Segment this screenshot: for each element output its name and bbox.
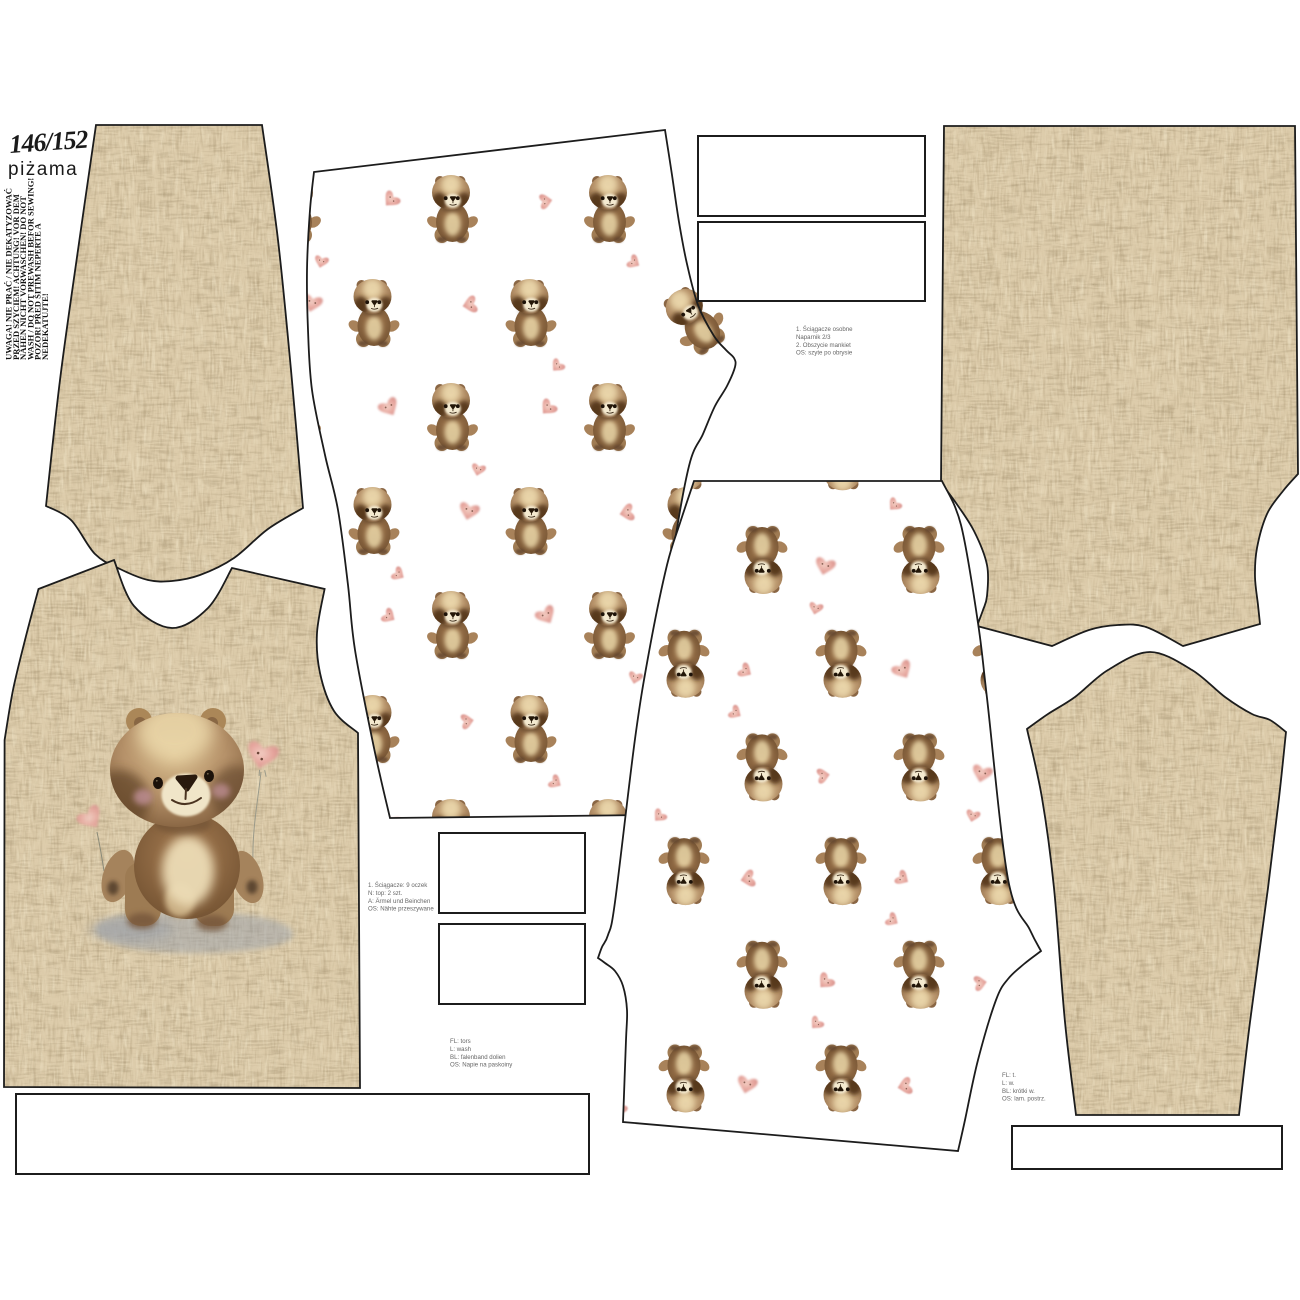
svg-text:OS: szyte po obrysie: OS: szyte po obrysie — [796, 350, 853, 357]
svg-text:NEDEKATUJTE!: NEDEKATUJTE! — [40, 293, 50, 360]
svg-text:2. Obszycie mankiet: 2. Obszycie mankiet — [796, 342, 851, 349]
svg-text:OS: Nähte przeszywane: OS: Nähte przeszywane — [368, 906, 434, 913]
svg-text:1. Ściągacze: 9 oczek: 1. Ściągacze: 9 oczek — [368, 881, 428, 889]
svg-text:L: wash: L: wash — [450, 1046, 471, 1053]
svg-text:FL: t.: FL: t. — [1002, 1072, 1016, 1079]
svg-text:146/152: 146/152 — [8, 125, 89, 159]
svg-text:piżama: piżama — [8, 159, 78, 180]
svg-text:OS: Napie na paskoiny: OS: Napie na paskoiny — [450, 1062, 513, 1069]
svg-text:FL: tors: FL: tors — [450, 1038, 471, 1045]
svg-text:N: top: 2 szt.: N: top: 2 szt. — [368, 890, 403, 897]
svg-text:A: Ärmel und Beinchen: A: Ärmel und Beinchen — [368, 898, 430, 905]
svg-text:1. Ściągacze osobne: 1. Ściągacze osobne — [796, 325, 853, 333]
svg-text:L: w.: L: w. — [1002, 1080, 1015, 1087]
svg-text:BL: falenband dolien: BL: falenband dolien — [450, 1054, 506, 1061]
svg-text:Naparnik 2/3: Naparnik 2/3 — [796, 334, 831, 341]
svg-text:BL: krótki w.: BL: krótki w. — [1002, 1088, 1035, 1095]
svg-text:OS: lam. postrz.: OS: lam. postrz. — [1002, 1096, 1046, 1103]
